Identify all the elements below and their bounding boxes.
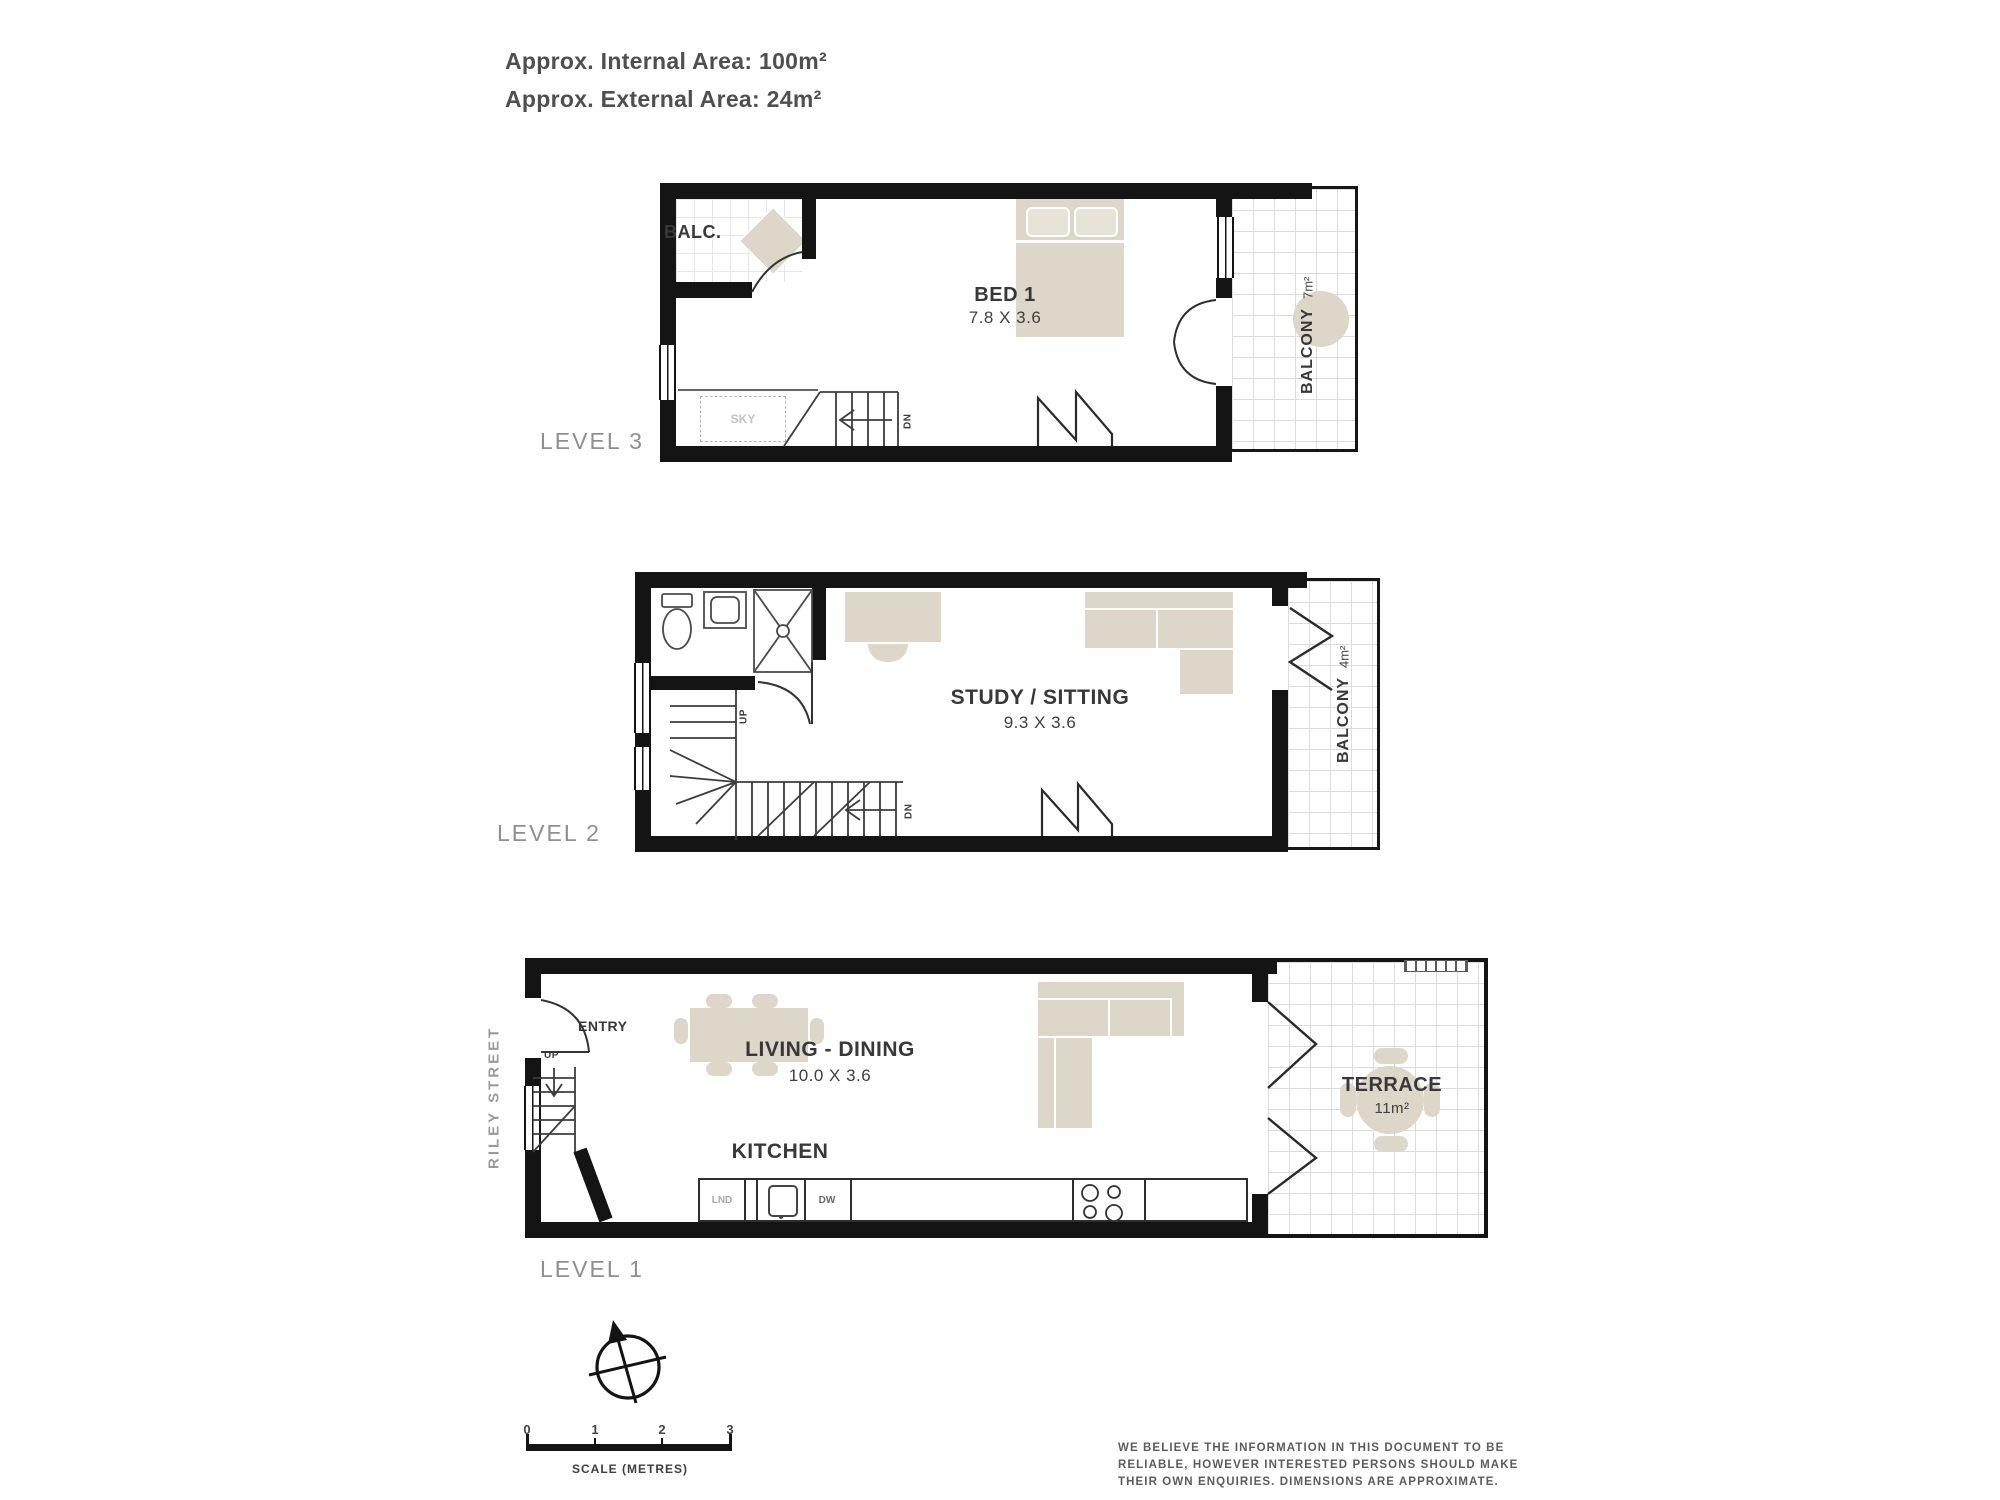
wall — [1216, 278, 1232, 298]
window-icon — [524, 1086, 541, 1150]
window-icon — [1217, 217, 1234, 278]
sink-module — [756, 1180, 806, 1220]
angled-wall — [580, 1150, 606, 1220]
desk-chair-icon — [868, 644, 908, 662]
wall — [1216, 183, 1232, 217]
dining-chair-icon — [674, 1018, 688, 1044]
linework-layer — [0, 0, 2000, 1500]
open-window-icon — [1042, 784, 1112, 836]
wall — [635, 733, 651, 747]
wall — [635, 572, 1307, 588]
disclaimer-line2: RELIABLE, HOWEVER INTERESTED PERSONS SHO… — [1118, 1457, 1518, 1473]
street-name: RILEY STREET — [486, 1025, 503, 1168]
dining-chair-icon — [706, 994, 732, 1008]
pillow-icon — [1074, 207, 1118, 237]
bed-blanket-line — [1016, 240, 1124, 243]
wall — [1216, 386, 1232, 462]
floorplan-page: Approx. Internal Area: 100m² Approx. Ext… — [0, 0, 2000, 1500]
bathroom-door-icon — [758, 662, 812, 724]
living-label: LIVING - DINING — [700, 1038, 960, 1062]
internal-area-text: Approx. Internal Area: 100m² — [505, 48, 827, 75]
stairs-down-icon — [784, 392, 898, 446]
window-icon — [634, 747, 651, 790]
dishwasher-label: DW — [819, 1195, 836, 1206]
compass-icon — [589, 1320, 666, 1403]
stairs-dn-label: DN — [898, 404, 918, 438]
level1-label: LEVEL 1 — [540, 1256, 644, 1283]
pillow-icon — [1026, 207, 1070, 237]
wall — [1272, 572, 1288, 606]
wall — [651, 676, 755, 690]
street-label: RILEY STREET — [482, 1022, 506, 1172]
wall — [525, 1058, 541, 1086]
entry-label: ENTRY — [578, 1018, 627, 1034]
level2-label: LEVEL 2 — [497, 820, 601, 847]
vanity-sink-icon — [704, 592, 746, 628]
disclaimer-line3: THEIR OWN ENQUIRIES. DIMENSIONS ARE APPR… — [1118, 1474, 1499, 1490]
stairs-up-label: UP — [735, 702, 753, 732]
sofa-icon — [1038, 1000, 1108, 1036]
study-dims: 9.3 X 3.6 — [905, 713, 1175, 733]
kitchen-label: KITCHEN — [680, 1140, 880, 1164]
sofa-icon — [1038, 982, 1184, 998]
balcony-name: BALCONY — [1299, 308, 1317, 394]
balc-label: BALC. — [664, 222, 722, 243]
sofa-icon — [1085, 610, 1156, 648]
external-area-text: Approx. External Area: 24m² — [505, 86, 822, 113]
bed1-dims: 7.8 X 3.6 — [940, 308, 1070, 328]
wall — [660, 183, 1312, 199]
sofa-icon — [1180, 650, 1233, 694]
terrace-planter — [1404, 960, 1468, 972]
stairs-up-label: UP — [544, 1050, 559, 1061]
sink-tap-icon — [779, 1215, 783, 1219]
scale-label: SCALE (METRES) — [528, 1462, 732, 1476]
balcony7-label: BALCONY 7m² — [1294, 235, 1322, 435]
balcony4-label: BALCONY 4m² — [1330, 596, 1358, 812]
sofa-icon — [1056, 1038, 1092, 1128]
scale-tick-2: 2 — [652, 1422, 672, 1437]
wall — [525, 958, 541, 998]
balcony-area: 4m² — [1337, 645, 1352, 667]
stairs-up-down-icon — [670, 690, 903, 840]
terrace-area-label: 11m² — [1312, 1100, 1472, 1117]
wall — [660, 282, 752, 298]
dishwasher-module: DW — [804, 1180, 852, 1220]
wall — [812, 588, 826, 660]
open-window-icon — [1038, 392, 1112, 446]
study-label: STUDY / SITTING — [905, 686, 1175, 710]
skylight-box: SKY — [700, 396, 786, 442]
wall — [802, 183, 816, 259]
scale-bar-line — [527, 1444, 732, 1451]
terrace-chair-icon — [1374, 1048, 1408, 1064]
wall — [635, 836, 1288, 852]
terrace-label: TERRACE — [1312, 1074, 1472, 1097]
stairs-dn-label: DN — [899, 794, 919, 828]
living-dims: 10.0 X 3.6 — [700, 1066, 960, 1086]
wall — [1252, 1194, 1268, 1238]
laundry-cupboard: LND — [700, 1180, 746, 1220]
sink-icon — [768, 1185, 798, 1217]
window-icon — [659, 345, 676, 400]
skylight-label: SKY — [731, 412, 756, 426]
toilet-icon — [662, 594, 692, 649]
disclaimer-line1: WE BELIEVE THE INFORMATION IN THIS DOCUM… — [1118, 1440, 1504, 1456]
wall — [525, 958, 1277, 974]
sofa-icon — [1110, 1000, 1170, 1036]
sofa-icon — [1085, 592, 1233, 608]
scale-tick-1: 1 — [585, 1422, 605, 1437]
balcony-name: BALCONY — [1335, 677, 1353, 763]
wall — [1272, 690, 1288, 852]
wall — [1252, 958, 1268, 1002]
wall — [660, 183, 676, 345]
sofa-icon — [1172, 982, 1184, 1036]
shower-icon — [754, 590, 812, 672]
wall — [525, 1222, 1268, 1238]
desk-icon — [845, 592, 941, 642]
window-icon — [634, 663, 651, 733]
french-doors-icon — [1174, 300, 1216, 384]
sofa-icon — [1158, 610, 1233, 648]
laundry-label: LND — [712, 1195, 733, 1206]
terrace-chair-icon — [1374, 1136, 1408, 1152]
balcony-area: 7m² — [1301, 276, 1316, 298]
wall — [635, 572, 651, 663]
level3-label: LEVEL 3 — [540, 428, 644, 455]
dining-chair-icon — [752, 994, 778, 1008]
cooktop-module — [1072, 1180, 1146, 1220]
bed1-label: BED 1 — [940, 284, 1070, 307]
wall — [660, 446, 1232, 462]
sofa-icon — [1038, 1038, 1054, 1128]
